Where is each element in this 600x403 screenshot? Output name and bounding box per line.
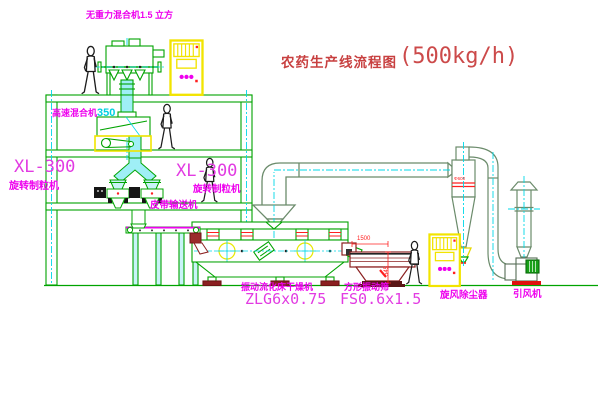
- exhaust-duct: [253, 163, 452, 228]
- granulator-right-motor: [129, 187, 140, 198]
- building-slab-top: [46, 95, 252, 102]
- person-top-floor: [82, 46, 99, 93]
- control-cabinet-lower: [429, 234, 459, 286]
- diagram-title: 农药生产线流程图 (500kg/h): [281, 44, 518, 71]
- dryer-hopper: [196, 262, 344, 277]
- label-fluid-bed-dryer-model: ZLG6x0.75: [245, 292, 326, 307]
- label-granulator-right-model: XL-300: [176, 163, 237, 180]
- gravity-free-mixer: [94, 39, 165, 95]
- vibrating-screen: [342, 243, 419, 287]
- label-cyclone: 旋风除尘器: [440, 291, 488, 301]
- dimension-cyclone-marking: Φ600: [454, 177, 465, 182]
- title-capacity: (500kg/h): [399, 44, 518, 69]
- induced-draft-fan: [505, 258, 541, 285]
- feed-pipes: [114, 95, 156, 182]
- granulator-discharge-pipe: [131, 210, 146, 228]
- dimension-screen-height: 545: [384, 266, 390, 276]
- fan-base: [512, 281, 541, 285]
- label-vibrating-screen-model: FS0.6x1.5: [340, 292, 421, 307]
- conveyor-head-drive: [190, 233, 201, 243]
- person-second-floor: [158, 104, 174, 149]
- granulator-left-motor: [94, 187, 106, 198]
- label-high-speed-mixer-capacity: 350: [97, 107, 115, 119]
- control-cabinet-upper: [170, 40, 202, 94]
- y-splitter: [114, 158, 156, 182]
- label-granulator-right: 旋转制粒机: [193, 185, 241, 195]
- dimension-screen-length: 1500: [357, 236, 370, 242]
- diagram-canvas: 农药生产线流程图 (500kg/h) 无重力混合机1.5 立方 高速混合机350…: [0, 0, 600, 403]
- label-belt-conveyor: 皮带输送机: [150, 201, 198, 211]
- label-granulator-left: 旋转制粒机: [9, 182, 59, 192]
- title-text: 农药生产线流程图: [281, 51, 397, 71]
- label-high-speed-mixer: 高速混合机350: [52, 108, 115, 119]
- label-granulator-left-model: XL-300: [14, 159, 75, 176]
- building-columns: [133, 233, 198, 285]
- hsmixer-down-pipe: [129, 135, 141, 160]
- label-gravity-mixer: 无重力混合机1.5 立方: [86, 11, 173, 20]
- vortex-finder: [456, 147, 469, 160]
- label-induced-draft-fan: 引风机: [513, 290, 542, 300]
- fluid-bed-dryer: [192, 222, 362, 286]
